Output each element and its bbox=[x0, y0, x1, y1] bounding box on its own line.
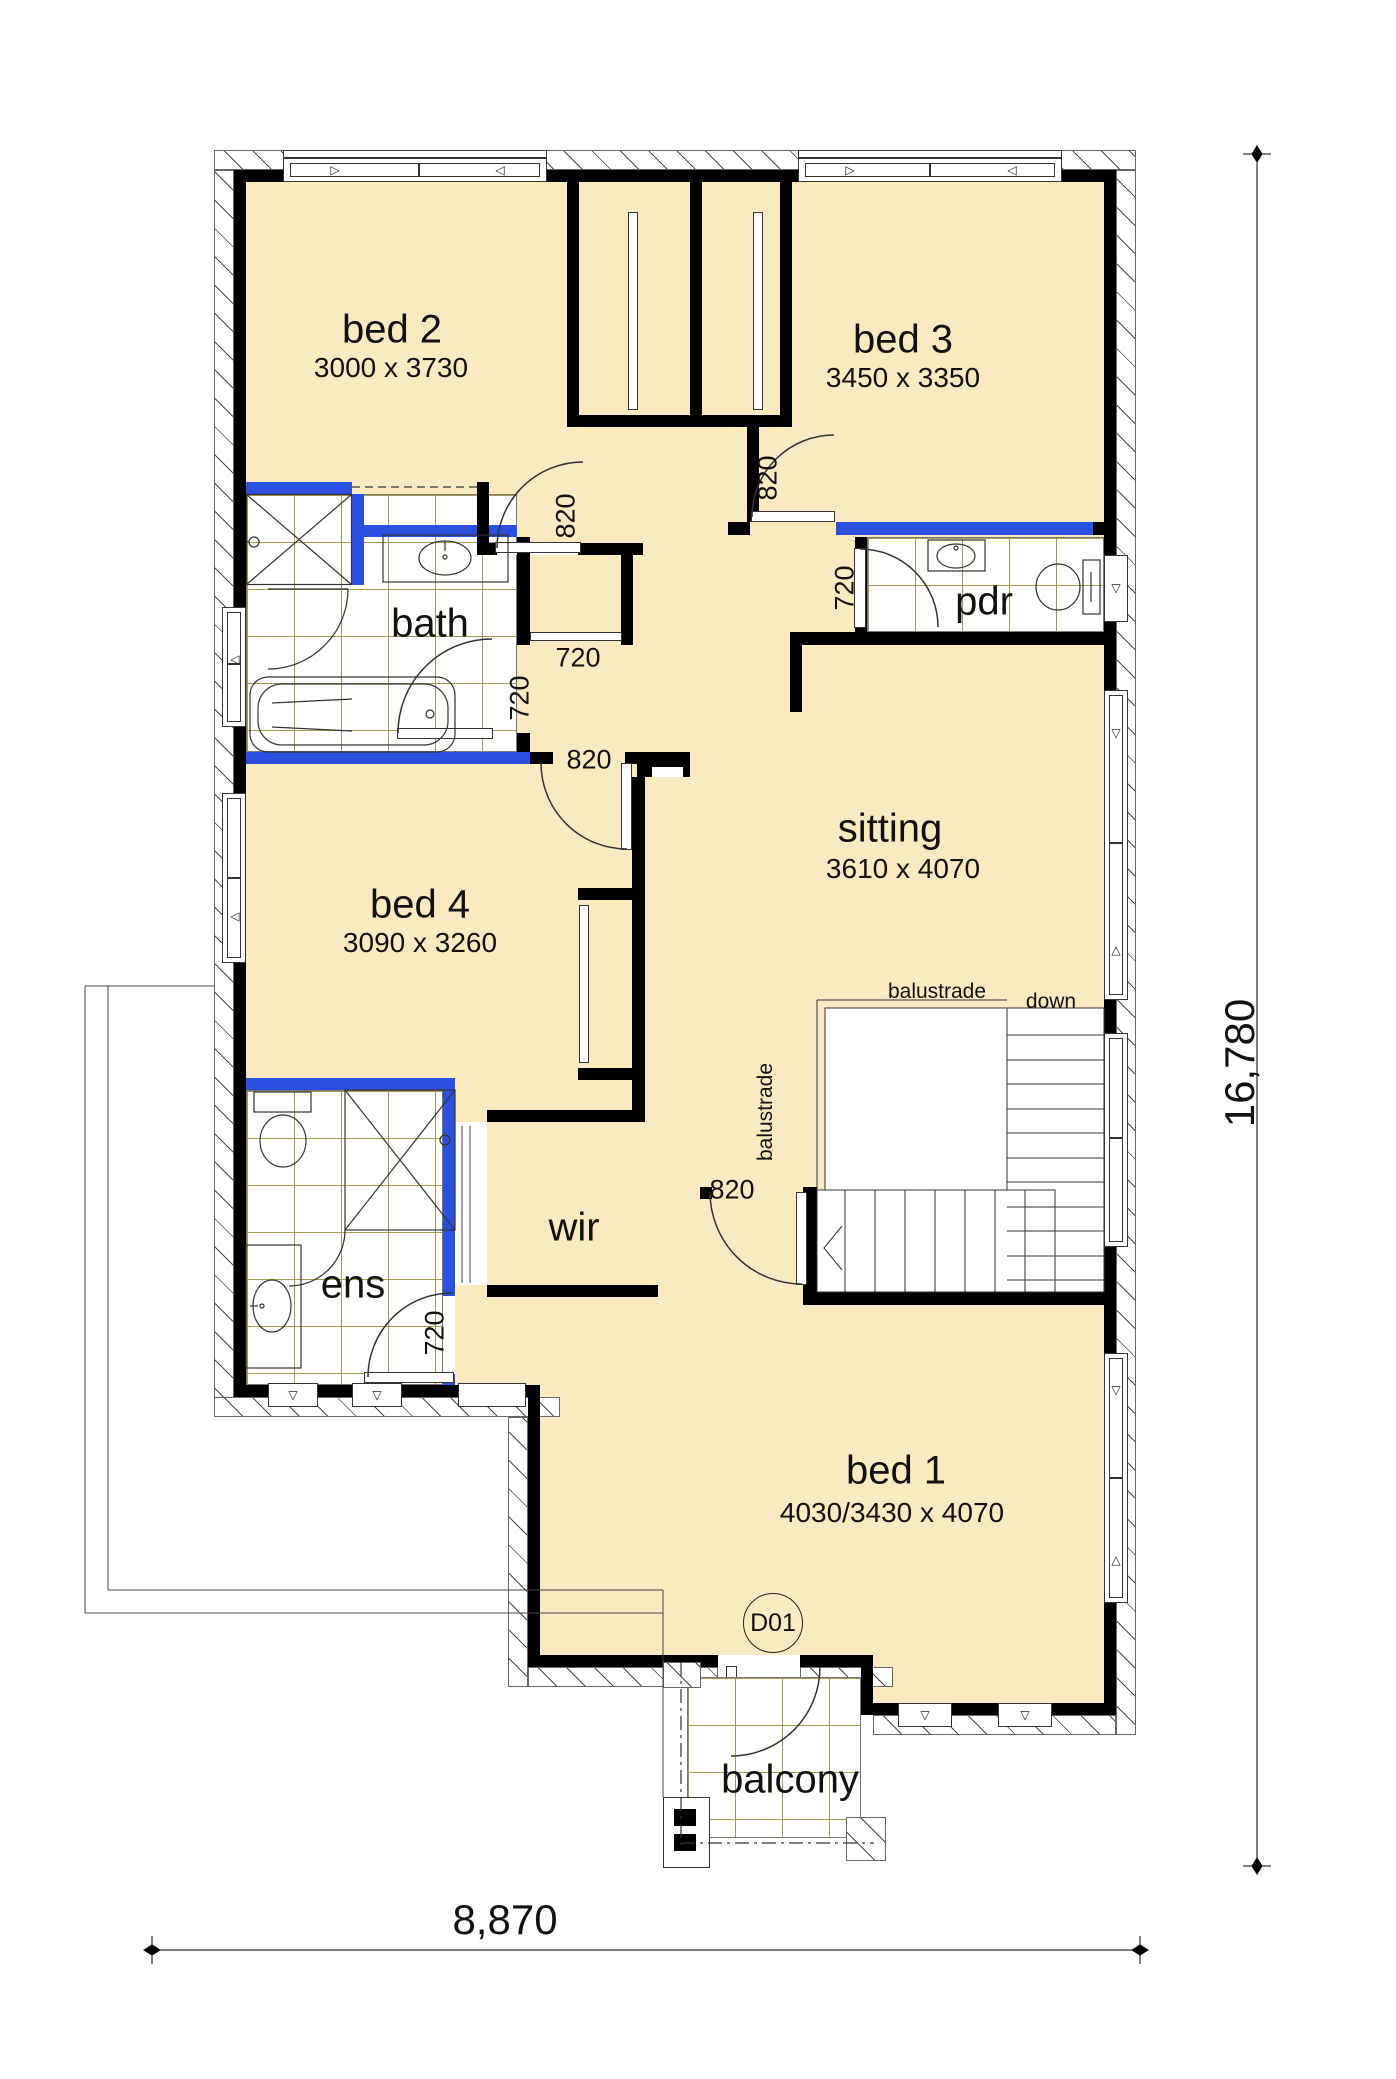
room-label-bath: bath bbox=[391, 602, 469, 647]
balcony-post-right bbox=[846, 1817, 886, 1861]
room-label-wir: wir bbox=[548, 1206, 599, 1251]
window-arrow-icon: ▷ bbox=[330, 163, 339, 177]
robe-slider-bed4 bbox=[579, 905, 589, 1063]
wall-linen-left-bath-right bbox=[517, 537, 530, 645]
down-label: down bbox=[1026, 990, 1076, 1014]
room-label-bed3: bed 3 bbox=[853, 318, 953, 363]
wall-robe-divider bbox=[690, 182, 702, 427]
robe-slider-bed3 bbox=[753, 212, 763, 410]
door-leaf-bed2 bbox=[495, 542, 581, 553]
room-label-pdr: pdr bbox=[955, 580, 1013, 625]
window-arrow-icon: ▽ bbox=[920, 1708, 929, 1722]
window-sash bbox=[419, 163, 540, 177]
window-arrow-icon: ▽ bbox=[1111, 1383, 1120, 1397]
window-arrow-icon: ▽ bbox=[1020, 1708, 1029, 1722]
wet-wall-ens-top bbox=[246, 1078, 455, 1090]
window-sash bbox=[227, 664, 241, 722]
wall-pdr-bottom bbox=[800, 632, 1104, 645]
door-size-label-bath: 720 bbox=[505, 675, 536, 720]
wet-wall-shower-top bbox=[246, 482, 352, 494]
door-tag-d01: D01 bbox=[743, 1593, 803, 1653]
door-leaf-ens bbox=[364, 1372, 454, 1383]
window-sash bbox=[1109, 1358, 1123, 1478]
door-leaf-bed3 bbox=[751, 511, 835, 522]
robe-slider-bed2 bbox=[628, 212, 638, 410]
wall-bed2-right bbox=[567, 182, 579, 427]
door-size-label-pdr: 720 bbox=[830, 565, 861, 610]
window-sash bbox=[290, 163, 419, 177]
wir-shelf-strip bbox=[455, 1122, 487, 1285]
floor-plan: ▷ ◁ ▷ ◁ △ △ ▽ ▽ △ ▽ △ ▽ ▽ ▽ ▽ bbox=[0, 0, 1396, 2079]
window-arrow-icon: ◁ bbox=[1007, 163, 1016, 177]
wet-wall-shower-right bbox=[352, 494, 364, 585]
balcony-corner-hatch bbox=[663, 1662, 701, 1688]
hatched-exterior-bed1-left bbox=[508, 1417, 528, 1687]
overall-height-dimension: 16,780 bbox=[1216, 999, 1264, 1127]
window-arrow-icon: ▷ bbox=[845, 163, 854, 177]
balustrade-label-side: balustrade bbox=[754, 1063, 778, 1161]
room-label-bed4: bed 4 bbox=[370, 883, 470, 928]
room-dims-sitting: 3610 x 4070 bbox=[826, 853, 980, 885]
overall-width-dimension: 8,870 bbox=[452, 1896, 557, 1944]
window-arrow-icon: ▽ bbox=[372, 1388, 381, 1402]
room-label-ens: ens bbox=[321, 1263, 386, 1308]
window-arrow-icon: ◁ bbox=[495, 163, 504, 177]
window-sash bbox=[805, 163, 930, 177]
window-arrow-icon: △ bbox=[1111, 1553, 1120, 1567]
wall-pdr-top-stub bbox=[728, 522, 750, 535]
window-sash bbox=[1109, 1478, 1123, 1598]
room-dims-bed3: 3450 x 3350 bbox=[826, 362, 980, 394]
window-sash bbox=[1109, 843, 1123, 995]
wall-wir-bottom bbox=[487, 1285, 658, 1297]
door-size-label-linen: 720 bbox=[555, 643, 600, 674]
wall-stair-bottom bbox=[817, 1292, 1104, 1305]
window-sill bbox=[798, 150, 1062, 158]
balcony-post-block bbox=[674, 1809, 696, 1826]
wall-bed3-left bbox=[780, 182, 792, 427]
wall-bed4-robe-top bbox=[578, 888, 643, 900]
wet-wall-vanity-top bbox=[364, 525, 517, 537]
ens-floor bbox=[246, 1090, 443, 1385]
window-hall-bottom bbox=[458, 1383, 526, 1407]
room-label-balcony: balcony bbox=[721, 1758, 859, 1803]
room-dims-bed1: 4030/3430 x 4070 bbox=[780, 1497, 1004, 1529]
corridor-corner-notch bbox=[652, 767, 683, 777]
door-tag-text: D01 bbox=[750, 1609, 796, 1638]
room-label-sitting: sitting bbox=[838, 807, 943, 852]
window-sash bbox=[1109, 1038, 1123, 1138]
door-leaf-bath bbox=[397, 728, 493, 739]
wall-bed4-robe-bottom bbox=[578, 1068, 643, 1080]
door-size-label-bed2: 820 bbox=[551, 493, 582, 538]
room-label-bed2: bed 2 bbox=[342, 308, 442, 353]
wall-sitting-stub bbox=[790, 632, 802, 712]
wall-bed1-botleft bbox=[540, 1655, 873, 1667]
wall-corridor bbox=[632, 777, 645, 1110]
room-dims-bed2: 3000 x 3730 bbox=[314, 352, 468, 384]
window-sill bbox=[283, 150, 547, 158]
wall-bed1-left bbox=[528, 1397, 540, 1667]
balcony-post-block bbox=[674, 1834, 696, 1851]
wall-left bbox=[234, 182, 246, 1397]
window-sash bbox=[1109, 695, 1123, 843]
window-arrow-icon: ▽ bbox=[1111, 581, 1120, 595]
room-label-bed1: bed 1 bbox=[846, 1449, 946, 1494]
door-size-label-ens: 720 bbox=[420, 1310, 451, 1355]
door-leaf-sitting bbox=[796, 1192, 807, 1285]
window-sash bbox=[930, 163, 1055, 177]
room-dims-bed4: 3090 x 3260 bbox=[343, 927, 497, 959]
window-sash bbox=[1109, 1138, 1123, 1242]
door-size-label-sitting: 820 bbox=[709, 1175, 754, 1206]
wall-bath-bottom-a bbox=[530, 752, 553, 764]
window-sash bbox=[227, 798, 241, 878]
door-size-label-bed3: 820 bbox=[753, 455, 784, 500]
balustrade-label-top: balustrade bbox=[888, 980, 986, 1004]
linen-door-line bbox=[530, 632, 622, 641]
window-arrow-icon: △ bbox=[1111, 943, 1120, 957]
window-arrow-icon: ▽ bbox=[1111, 726, 1120, 740]
door-leaf-bed4 bbox=[621, 763, 632, 850]
window-arrow-icon: △ bbox=[227, 912, 241, 921]
wall-bath-right-stub bbox=[517, 733, 530, 752]
wet-wall-bath-bottom bbox=[234, 752, 530, 764]
balcony-post-left bbox=[663, 1797, 710, 1868]
door-size-label-bed4: 820 bbox=[566, 745, 611, 776]
window-arrow-icon: △ bbox=[227, 655, 241, 664]
floor-bed1-right bbox=[873, 1385, 1104, 1703]
wall-pdr-top-right bbox=[1093, 522, 1104, 535]
wall-wir-top bbox=[487, 1110, 645, 1122]
wall-linen-right bbox=[621, 555, 633, 645]
window-arrow-icon: ▽ bbox=[288, 1388, 297, 1402]
wet-wall-pdr-top bbox=[836, 522, 1093, 535]
